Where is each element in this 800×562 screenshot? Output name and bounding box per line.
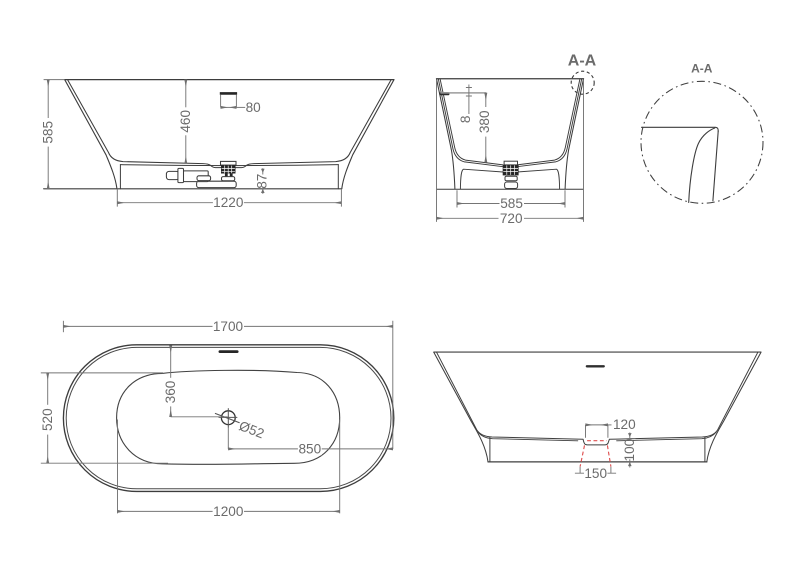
svg-text:850: 850 (298, 442, 321, 457)
svg-text:720: 720 (500, 211, 523, 226)
svg-text:380: 380 (477, 110, 492, 133)
svg-text:1700: 1700 (213, 319, 244, 334)
svg-text:460: 460 (178, 110, 193, 133)
svg-text:120: 120 (613, 417, 636, 432)
svg-text:1200: 1200 (213, 504, 244, 519)
svg-text:A-A: A-A (568, 52, 597, 69)
svg-text:360: 360 (163, 380, 178, 403)
svg-text:100: 100 (622, 438, 637, 461)
svg-text:1220: 1220 (213, 195, 244, 210)
svg-text:8: 8 (458, 116, 473, 124)
svg-text:585: 585 (500, 196, 523, 211)
svg-text:150: 150 (584, 466, 607, 481)
svg-text:520: 520 (40, 408, 55, 431)
svg-text:87: 87 (255, 174, 270, 189)
svg-text:A-A: A-A (691, 62, 713, 76)
svg-text:80: 80 (246, 100, 262, 115)
svg-text:585: 585 (40, 121, 55, 144)
